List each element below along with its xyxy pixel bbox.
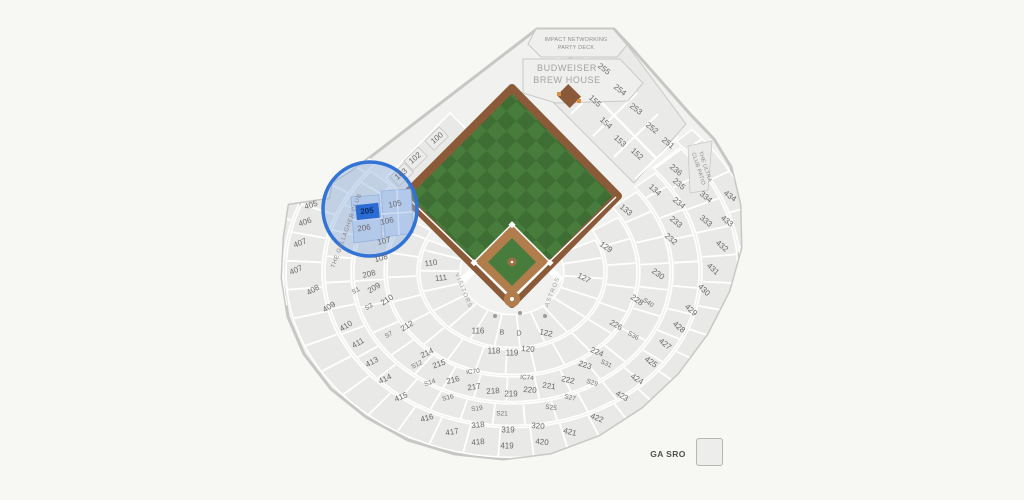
section-label-421[interactable]: 421 [562, 426, 577, 438]
section-label-223[interactable]: 223 [577, 359, 592, 372]
section-label-423[interactable]: 423 [614, 389, 630, 403]
section-label-230[interactable]: 230 [650, 266, 666, 281]
section-label-430[interactable]: 430 [696, 282, 712, 298]
section-label-320[interactable]: 320 [531, 421, 545, 431]
section-label-434[interactable]: 434 [722, 188, 738, 203]
section-label-118[interactable]: 118 [488, 347, 501, 356]
section-label-102[interactable]: 102 [407, 150, 423, 165]
party-deck-label-line2: PARTY DECK [558, 45, 595, 51]
section-label-429[interactable]: 429 [683, 302, 699, 318]
section-label-425[interactable]: 425 [643, 354, 659, 369]
section-label-333[interactable]: 333 [698, 213, 714, 228]
section-label-424[interactable]: 424 [629, 372, 645, 387]
section-label-319[interactable]: 319 [501, 426, 514, 435]
section-label-155[interactable]: 155 [587, 93, 603, 109]
section-label-205[interactable]: 205 [360, 206, 374, 216]
section-label-217[interactable]: 217 [467, 382, 481, 393]
section-label-133[interactable]: 133 [618, 202, 634, 217]
section-label-405[interactable]: 405 [303, 199, 318, 212]
section-label-IC74[interactable]: IC74 [520, 374, 534, 382]
section-label-432[interactable]: 432 [714, 238, 730, 253]
section-label-S19[interactable]: S19 [471, 405, 483, 414]
section-label-IC70[interactable]: IC70 [466, 368, 480, 376]
section-label-107[interactable]: 107 [376, 235, 391, 247]
section-label-S3[interactable]: S3 [364, 302, 374, 312]
section-label-254[interactable]: 254 [612, 82, 628, 97]
section-label-414[interactable]: 414 [377, 372, 393, 386]
section-label-212[interactable]: 212 [399, 319, 415, 334]
section-label-226[interactable]: 226 [608, 318, 624, 332]
section-label-413[interactable]: 413 [364, 355, 380, 369]
section-label-218[interactable]: 218 [486, 386, 500, 396]
section-label-110[interactable]: 110 [424, 258, 438, 269]
section-label-233[interactable]: 233 [668, 214, 684, 229]
section-label-208[interactable]: 208 [361, 268, 376, 280]
section-label-417[interactable]: 417 [445, 426, 460, 437]
section-label-S40[interactable]: S40 [641, 297, 655, 309]
section-label-411[interactable]: 411 [350, 336, 366, 350]
section-label-S14[interactable]: S14 [423, 378, 436, 389]
section-label-222[interactable]: 222 [561, 374, 576, 386]
section-label-224[interactable]: 224 [589, 345, 605, 359]
section-label-253[interactable]: 253 [628, 101, 644, 116]
section-label-D[interactable]: D [516, 331, 521, 338]
section-label-407[interactable]: 407 [288, 263, 304, 277]
section-label-116[interactable]: 116 [472, 327, 485, 336]
section-label-318[interactable]: 318 [471, 420, 485, 430]
section-label-407[interactable]: 407 [292, 236, 308, 249]
section-label-433[interactable]: 433 [719, 213, 735, 228]
section-label-427[interactable]: 427 [657, 336, 673, 351]
section-label-209[interactable]: 209 [366, 281, 382, 296]
section-label-408[interactable]: 408 [305, 283, 321, 297]
section-label-153[interactable]: 153 [612, 133, 628, 149]
ga-sro-label: GA SRO [650, 449, 686, 459]
section-label-S29[interactable]: S29 [585, 378, 598, 388]
section-label-119[interactable]: 119 [506, 349, 519, 358]
section-label-S7[interactable]: S7 [384, 330, 394, 340]
section-label-S12[interactable]: S12 [410, 359, 423, 370]
section-label-431[interactable]: 431 [705, 261, 721, 277]
seating-map: 1001021031051061071081101111161181191201… [0, 0, 1024, 500]
ga-sro-box[interactable] [696, 438, 723, 466]
section-label-103[interactable]: 103 [393, 166, 409, 181]
section-label-127[interactable]: 127 [576, 271, 592, 285]
section-label-234[interactable]: 234 [671, 195, 687, 210]
section-label-215[interactable]: 215 [431, 357, 447, 370]
section-label-415[interactable]: 415 [393, 390, 409, 403]
section-label-B[interactable]: B [500, 330, 505, 337]
section-label-S31[interactable]: S31 [599, 358, 612, 369]
section-label-406[interactable]: 406 [297, 215, 313, 228]
section-label-210[interactable]: 210 [379, 293, 395, 308]
section-label-S21[interactable]: S21 [496, 411, 508, 418]
section-label-235[interactable]: 235 [671, 176, 687, 191]
section-label-S16[interactable]: S16 [442, 393, 455, 403]
section-label-100[interactable]: 100 [429, 130, 445, 145]
section-label-122[interactable]: 122 [539, 327, 554, 339]
section-label-S1[interactable]: S1 [351, 286, 361, 296]
party-deck-label-line1: IMPACT NETWORKING [544, 37, 607, 43]
section-label-418[interactable]: 418 [471, 437, 485, 447]
section-label-409[interactable]: 409 [321, 300, 337, 315]
section-label-220[interactable]: 220 [523, 385, 537, 395]
section-label-129[interactable]: 129 [598, 240, 614, 255]
brew-house-label-line1: BUDWEISER [537, 63, 597, 73]
section-label-252[interactable]: 252 [644, 120, 660, 135]
section-labels-layer: 1001021031051061071081101111161181191201… [0, 0, 1024, 500]
section-label-120[interactable]: 120 [521, 344, 535, 354]
section-label-105[interactable]: 105 [388, 198, 403, 210]
section-label-152[interactable]: 152 [629, 146, 645, 162]
section-label-206[interactable]: 206 [357, 223, 371, 234]
section-label-221[interactable]: 221 [542, 381, 556, 392]
section-label-S27[interactable]: S27 [564, 393, 577, 403]
section-label-236[interactable]: 236 [668, 162, 684, 177]
section-label-428[interactable]: 428 [671, 319, 687, 334]
section-label-214[interactable]: 214 [419, 346, 435, 360]
section-label-111[interactable]: 111 [434, 273, 447, 283]
section-label-410[interactable]: 410 [338, 319, 354, 334]
section-label-219[interactable]: 219 [504, 390, 517, 399]
section-label-334[interactable]: 334 [698, 189, 714, 204]
section-label-108[interactable]: 108 [373, 252, 388, 264]
brew-house-label-line2: BREW HOUSE [533, 75, 601, 85]
section-label-416[interactable]: 416 [419, 412, 434, 424]
section-label-S25[interactable]: S25 [545, 404, 557, 413]
section-label-232[interactable]: 232 [663, 231, 679, 246]
section-label-106[interactable]: 106 [380, 215, 395, 227]
section-label-216[interactable]: 216 [445, 374, 460, 386]
section-label-134[interactable]: 134 [647, 182, 663, 198]
section-label-420[interactable]: 420 [535, 437, 549, 447]
section-label-251[interactable]: 251 [660, 135, 676, 150]
section-label-422[interactable]: 422 [589, 411, 605, 424]
section-label-154[interactable]: 154 [598, 115, 614, 131]
section-label-S36[interactable]: S36 [626, 330, 640, 342]
section-label-419[interactable]: 419 [500, 442, 513, 451]
